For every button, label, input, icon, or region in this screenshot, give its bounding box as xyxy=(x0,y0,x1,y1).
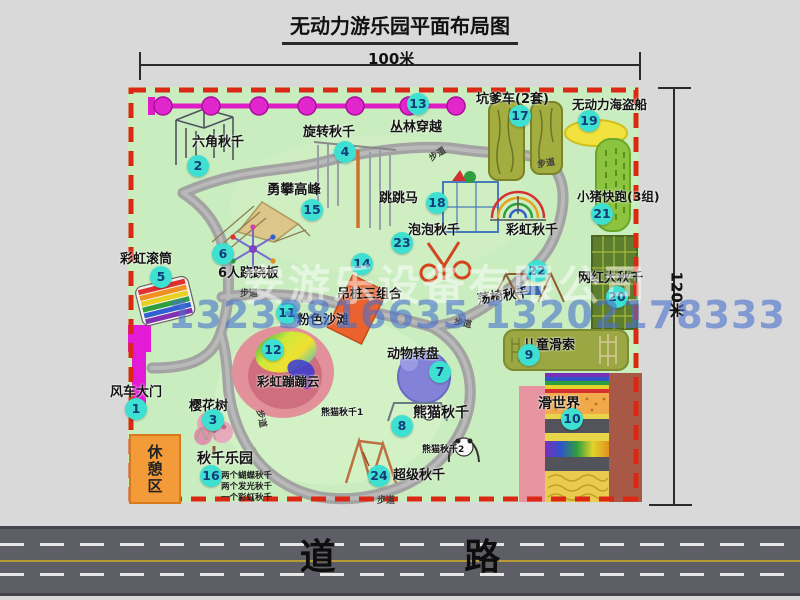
rest-area: 休憩区 xyxy=(129,434,181,504)
label-hexagon-swing: 六角秋千 xyxy=(192,131,244,150)
marker-bubble-swing: 23 xyxy=(391,232,413,254)
label-panda-swing: 熊猫秋千 xyxy=(413,402,469,422)
marker-swing-park: 16 xyxy=(200,465,222,487)
label-bounce-cloud: 彩虹蹦蹦云 xyxy=(257,371,320,390)
page-title: 无动力游乐园平面布局图 xyxy=(0,10,800,39)
marker-pirate-ship: 19 xyxy=(578,110,600,132)
label-rainbow-roller: 彩虹滚筒 xyxy=(120,248,172,267)
marker-rotating-swing: 4 xyxy=(334,141,356,163)
label-animal-turntable: 动物转盘 xyxy=(387,343,439,362)
marker-windmill-gate: 1 xyxy=(125,398,147,420)
label-jumping-horse: 跳跳马 xyxy=(379,187,418,206)
marker-slide-world: 10 xyxy=(561,408,583,430)
label-rainbow-swing: 彩虹秋千 xyxy=(506,219,558,238)
label-panda-swing-1: 熊猫秋千1 xyxy=(321,405,363,418)
label-super-swing: 超级秋千 xyxy=(393,464,445,483)
page-title-text: 无动力游乐园平面布局图 xyxy=(282,14,518,45)
label-panda-swing-2: 熊猫秋千2 xyxy=(422,442,464,455)
label-swing-park: 秋千乐园 xyxy=(197,448,253,468)
marker-kids-zipline: 9 xyxy=(518,344,540,366)
swing-park-note-3: 一个彩虹秋千 xyxy=(221,491,272,503)
marker-rainbow-roller: 5 xyxy=(150,266,172,288)
marker-six-seesaw: 6 xyxy=(212,243,234,265)
marker-super-swing: 24 xyxy=(368,465,390,487)
label-peak-climbing: 勇攀高峰 xyxy=(267,178,321,198)
width-dimension-label: 100米 xyxy=(368,48,414,69)
label-pit-car: 坑爹车(2套) xyxy=(476,88,549,107)
marker-panda-swing: 8 xyxy=(391,415,413,437)
watermark-phone: 13233816635 13202178333 xyxy=(168,293,786,337)
marker-peak-climbing: 15 xyxy=(301,199,323,221)
rest-area-label: 休憩区 xyxy=(145,444,166,495)
road-label: 道 路 xyxy=(0,528,800,580)
marker-pit-car: 17 xyxy=(509,105,531,127)
footpath-label: 步道 xyxy=(377,493,395,506)
label-jungle-crossing: 丛林穿越 xyxy=(390,116,442,135)
marker-pig-run: 21 xyxy=(591,203,613,225)
label-rotating-swing: 旋转秋千 xyxy=(303,121,355,140)
label-bubble-swing: 泡泡秋千 xyxy=(408,219,460,238)
marker-jungle-crossing: 13 xyxy=(407,93,429,115)
label-pig-run: 小猪快跑(3组) xyxy=(577,186,660,205)
marker-animal-turntable: 7 xyxy=(429,361,451,383)
marker-jumping-horse: 18 xyxy=(426,192,448,214)
park-plan: 无动力游乐园平面布局图 100米 120米 1 2 3 4 5 6 7 8 9 … xyxy=(0,0,800,600)
marker-hexagon-swing: 2 xyxy=(187,155,209,177)
marker-bounce-cloud: 12 xyxy=(262,339,284,361)
marker-cherry-tree: 3 xyxy=(202,409,224,431)
